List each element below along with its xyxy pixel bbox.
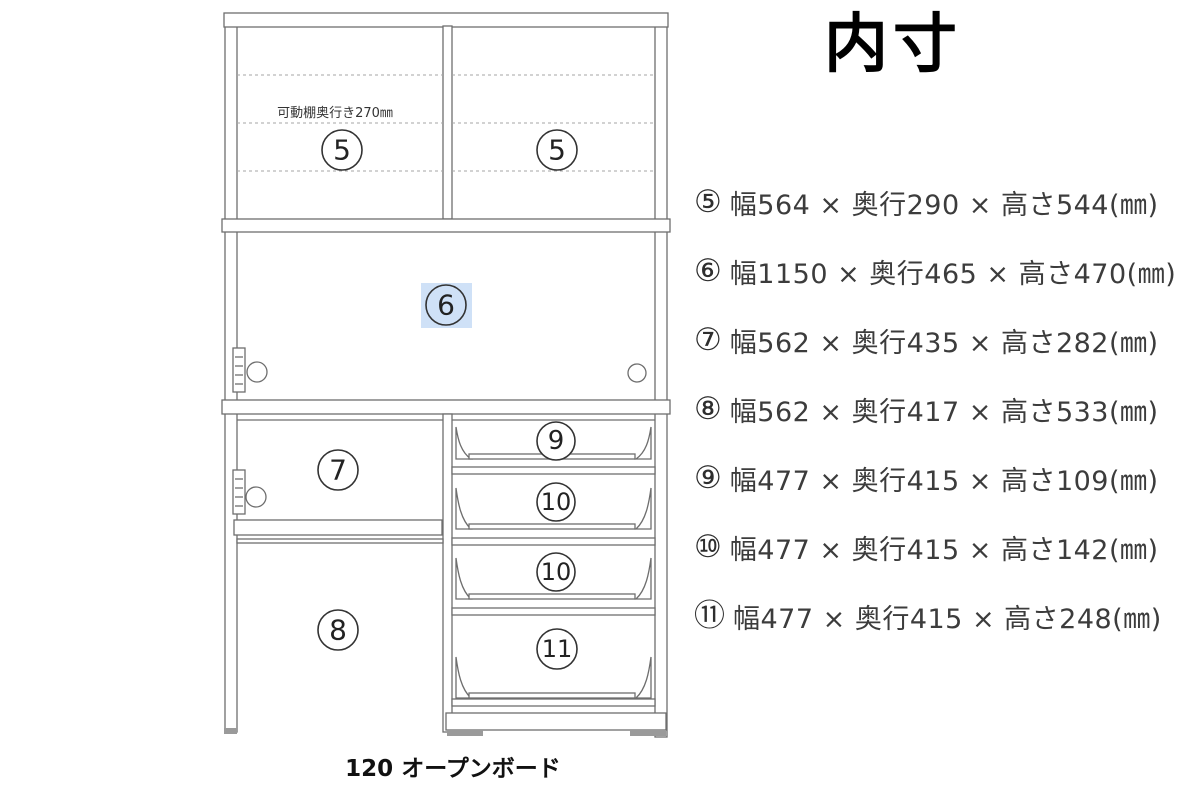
spec-symbol-5: ⑤ [694, 187, 722, 218]
drawer3-right-side [636, 558, 651, 599]
label8-text: 8 [329, 614, 347, 647]
spec-symbol-6: ⑥ [694, 256, 722, 287]
spec-text-10: 幅477 × 奥行415 × 高さ142(㎜) [730, 528, 1159, 567]
spec-text-8: 幅562 × 奥行417 × 高さ533(㎜) [730, 390, 1159, 429]
counter-board [222, 400, 670, 414]
drawer4-left-side [456, 657, 471, 698]
spec-row-11: ⑪ 幅477 × 奥行415 × 高さ248(㎜) [694, 582, 1174, 651]
label9-text: 9 [548, 426, 565, 456]
pin-strip-lower [233, 470, 245, 514]
label10b-text: 10 [541, 558, 572, 586]
page-title: 内寸 [824, 10, 962, 80]
spec-symbol-10: ⑩ [694, 532, 722, 563]
spec-row-6: ⑥ 幅1150 × 奥行465 × 高さ470(㎜) [694, 237, 1174, 306]
label7-text: 7 [329, 454, 347, 487]
drawer-divider-1 [452, 467, 655, 474]
drawer-divider-3 [452, 608, 655, 615]
drawer2-bottom [469, 524, 635, 529]
hutch-center-divider [443, 26, 452, 219]
spec-row-5: ⑤ 幅564 × 奥行290 × 高さ544(㎜) [694, 168, 1174, 237]
shelf-board [234, 520, 442, 535]
page: 5 5 6 7 8 9 10 10 11 可動棚奥行き270㎜ 120 オープン… [0, 0, 1200, 800]
hutch-bottom-board [222, 219, 670, 232]
spec-symbol-9: ⑨ [694, 463, 722, 494]
spec-row-8: ⑧ 幅562 × 奥行417 × 高さ533(㎜) [694, 375, 1174, 444]
spec-row-10: ⑩ 幅477 × 奥行415 × 高さ142(㎜) [694, 513, 1174, 582]
spec-text-11: 幅477 × 奥行415 × 高さ248(㎜) [733, 597, 1162, 636]
door-knob-lower-left [246, 487, 266, 507]
right-foot [630, 730, 666, 736]
label10a-text: 10 [541, 488, 572, 516]
spec-text-5: 幅564 × 奥行290 × 高さ544(㎜) [730, 183, 1159, 222]
door-knob-middle-right [628, 364, 646, 382]
spec-symbol-8: ⑧ [694, 394, 722, 425]
spec-row-9: ⑨ 幅477 × 奥行415 × 高さ109(㎜) [694, 444, 1174, 513]
spec-row-7: ⑦ 幅562 × 奥行435 × 高さ282(㎜) [694, 306, 1174, 375]
spec-text-7: 幅562 × 奥行435 × 高さ282(㎜) [730, 321, 1159, 360]
label6-text: 6 [437, 289, 455, 322]
center-foot [447, 730, 483, 736]
label5-right-text: 5 [548, 134, 566, 167]
spec-text-9: 幅477 × 奥行415 × 高さ109(㎜) [730, 459, 1159, 498]
top-board [224, 13, 668, 27]
drawer2-left-side [456, 488, 471, 529]
spec-symbol-7: ⑦ [694, 325, 722, 356]
fixed-board [237, 539, 443, 543]
kick-base [446, 713, 666, 730]
drawer4-right-side [636, 657, 651, 698]
spec-text-6: 幅1150 × 奥行465 × 高さ470(㎜) [730, 252, 1176, 291]
drawer-divider-2 [452, 538, 655, 545]
label5-left-text: 5 [333, 134, 351, 167]
pin-strip-middle [233, 348, 245, 392]
spec-list: ⑤ 幅564 × 奥行290 × 高さ544(㎜) ⑥ 幅1150 × 奥行46… [694, 168, 1174, 651]
base-center-divider [443, 414, 452, 732]
cabinet-structure [222, 13, 670, 737]
drawer4-bottom [469, 693, 635, 698]
label11-text: 11 [542, 635, 573, 663]
drawer3-bottom [469, 594, 635, 599]
right-side-panel [655, 26, 667, 737]
drawer2-right-side [636, 488, 651, 529]
drawer-column-bottom-board [452, 699, 655, 706]
shelf-depth-note: 可動棚奥行き270㎜ [277, 106, 393, 121]
left-foot [224, 728, 237, 734]
door-knob-middle-left [247, 362, 267, 382]
diagram-caption: 120 オープンボード [345, 756, 561, 782]
spec-symbol-11: ⑪ [694, 601, 725, 632]
drawer1-right-side [636, 427, 651, 459]
drawer3-left-side [456, 558, 471, 599]
